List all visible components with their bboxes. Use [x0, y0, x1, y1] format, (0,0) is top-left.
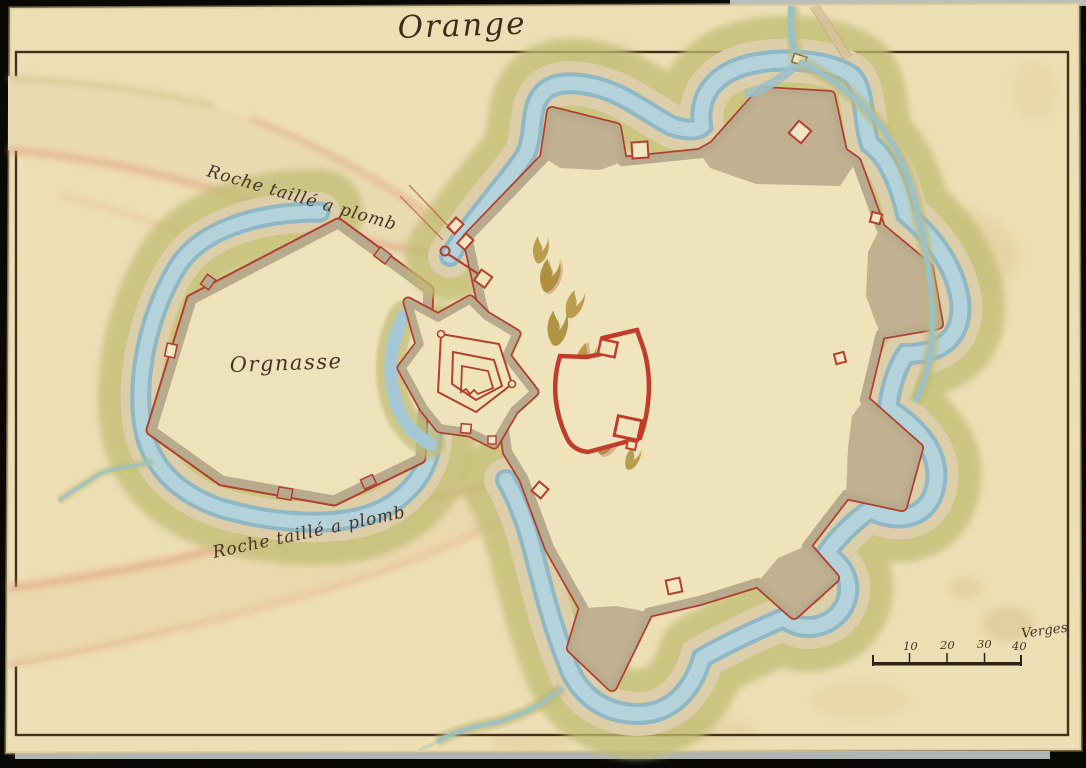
label-orgnasse: Orgnasse — [229, 349, 343, 377]
scale-tick-30: 30 — [977, 637, 992, 651]
scale-tick-10: 10 — [903, 639, 918, 653]
scale-tick-20: 20 — [939, 638, 955, 652]
orange-fortification-map: 10 20 30 40 Verges Orange Roche taillé a… — [0, 0, 1086, 768]
map-title: Orange — [397, 6, 527, 46]
citadel-gate — [461, 424, 472, 434]
orgnasse-gate — [165, 343, 177, 358]
map-canvas: 10 20 30 40 Verges Orange Roche taillé a… — [0, 0, 1086, 768]
